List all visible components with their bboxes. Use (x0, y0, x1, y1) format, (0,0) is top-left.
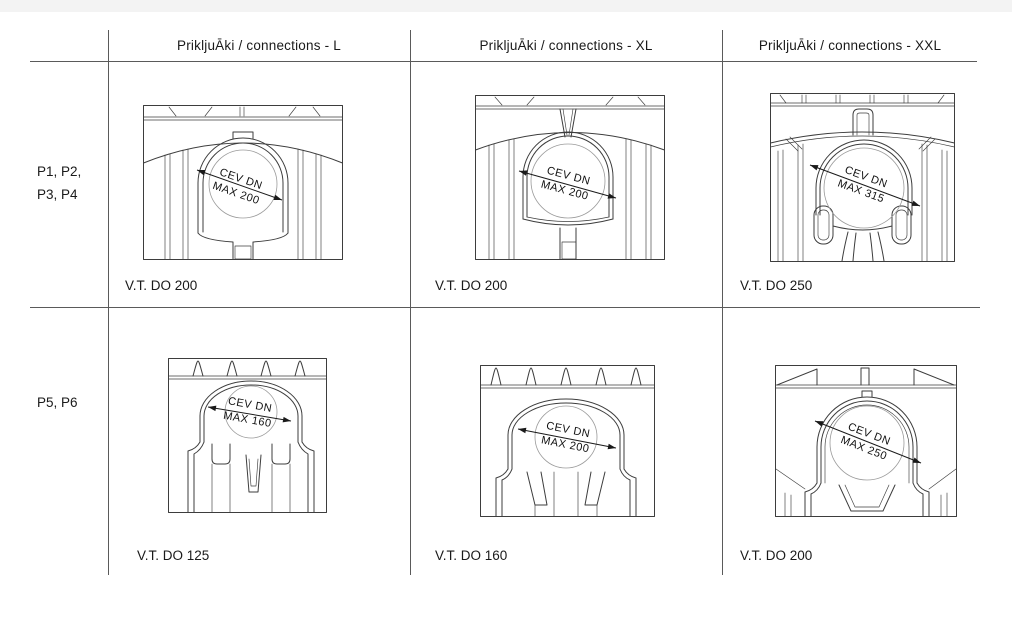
side-ribs (778, 137, 947, 261)
row-label-p1-p4: P1, P2,P3, P4 (37, 160, 81, 206)
row-label-p1-p4-line2: P3, P4 (37, 187, 78, 202)
castellated-bottom (496, 469, 636, 516)
row-label-p1-p4-line1: P1, P2, (37, 164, 81, 179)
top-handle (853, 109, 873, 135)
column-header-connections-xxl: PrikljuĀki / connections - XXL (722, 38, 978, 53)
drawing-p5p6-connections-xl: CEV DN MAX 200 (480, 365, 655, 517)
grid-vline-3 (722, 30, 723, 575)
drawing-p1p4-connections-xl: CEV DN MAX 200 (475, 95, 665, 260)
tank-top-arc (476, 133, 665, 151)
grid-vline-2 (410, 30, 411, 575)
grid-row-separator (30, 307, 980, 308)
caption-vt-do: V.T. DO 250 (740, 278, 812, 293)
grid-header-underline (30, 61, 977, 62)
drawing-p1p4-connections-l: CEV DN MAX 200 (143, 105, 343, 260)
drawing-p5p6-connections-xxl: CEV DN MAX 250 (775, 365, 957, 517)
drawing-p5p6-connections-l: CEV DN MAX 160 (168, 358, 327, 513)
row-label-p5-p6-line1: P5, P6 (37, 395, 78, 410)
grid-vline-1 (108, 30, 109, 575)
caption-vt-do: V.T. DO 200 (435, 278, 507, 293)
shaft-frame (169, 359, 327, 513)
caption-vt-do: V.T. DO 200 (125, 278, 197, 293)
bottom-fingers (842, 232, 884, 261)
dimension-label: CEV DN MAX 200 (211, 166, 266, 207)
dimension-label: CEV DN MAX 200 (540, 420, 593, 456)
caption-vt-do: V.T. DO 160 (435, 548, 507, 563)
tank-top-arc (144, 143, 343, 163)
side-ribs (165, 149, 321, 259)
drawing-p1p4-connections-xxl: CEV DN MAX 315 (770, 93, 955, 262)
castellated-bottom (776, 469, 956, 516)
side-ribs (489, 139, 651, 259)
row-label-p5-p6: P5, P6 (37, 391, 78, 414)
dimension-label: CEV DN MAX 200 (540, 164, 594, 203)
dimension-label: CEV DN MAX 160 (222, 395, 275, 430)
caption-vt-do: V.T. DO 200 (740, 548, 812, 563)
caption-vt-do: V.T. DO 125 (137, 548, 209, 563)
column-header-connections-l: PrikljuĀki / connections - L (108, 38, 410, 53)
column-header-connections-xl: PrikljuĀki / connections - XL (410, 38, 722, 53)
top-strip (0, 0, 1012, 12)
connection-dome (200, 381, 302, 442)
castellated-bottom (188, 442, 314, 512)
